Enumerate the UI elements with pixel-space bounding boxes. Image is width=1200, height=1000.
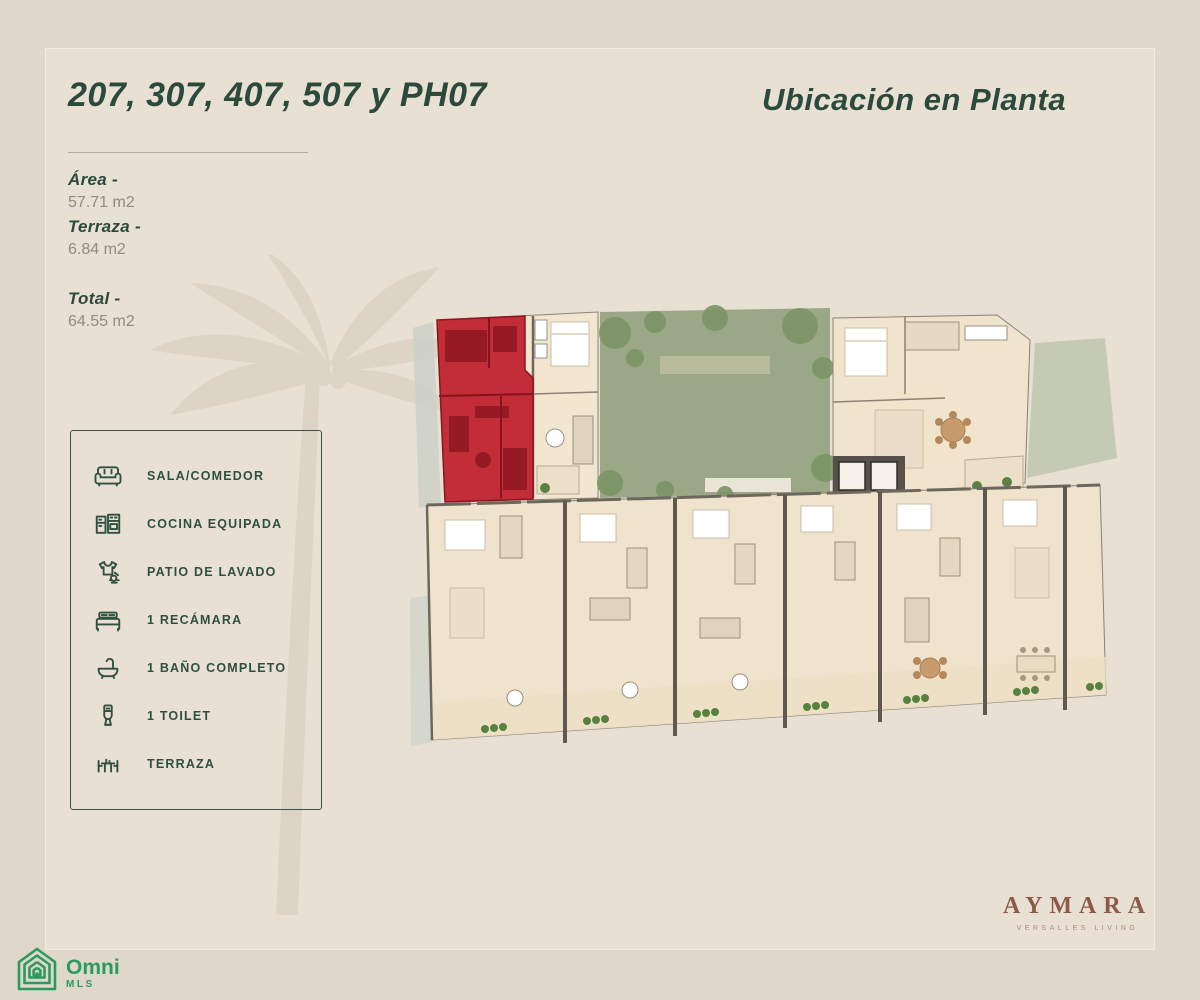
legend-item-cocina: COCINA EQUIPADA [93, 507, 311, 541]
terrace-label: Terraza - [68, 217, 328, 237]
omni-house-icon [16, 946, 58, 997]
title-divider [68, 152, 308, 153]
laundry-icon [93, 556, 133, 588]
legend-label: 1 BAÑO COMPLETO [133, 661, 286, 675]
project-name: AYMARA [985, 893, 1170, 920]
total-value: 64.55 m2 [68, 313, 328, 331]
legend-label: TERRAZA [133, 757, 215, 771]
bed-icon [93, 604, 133, 636]
floor-plan-image [405, 298, 1120, 758]
area-label: Área - [68, 170, 328, 190]
legend-item-patio: PATIO DE LAVADO [93, 555, 311, 589]
legend-item-sala: SALA/COMEDOR [93, 459, 311, 493]
legend-item-terraza: TERRAZA [93, 747, 311, 781]
mls-logo: Omni MLS [16, 946, 120, 997]
terrace-icon [93, 748, 133, 780]
mls-logo-subtext: MLS [66, 980, 120, 990]
plan-location-title: Ubicación en Planta [762, 82, 1066, 118]
mls-logo-text-block: Omni MLS [66, 953, 120, 990]
sidewalk-left [413, 322, 441, 508]
measurements-block: Área - 57.71 m2 Terraza - 6.84 m2 Total … [68, 167, 328, 336]
sofa-icon [93, 460, 133, 492]
legend-item-bano: 1 BAÑO COMPLETO [93, 651, 311, 685]
legend-label: PATIO DE LAVADO [133, 565, 277, 579]
bottom-block [427, 485, 1106, 743]
legend-box: SALA/COMEDOR COCINA EQUIPADA [70, 430, 322, 810]
legend-item-recamara: 1 RECÁMARA [93, 603, 311, 637]
project-tagline: VERSALLES LIVING [985, 925, 1170, 932]
mls-logo-name: Omni [66, 957, 120, 978]
legend-item-toilet: 1 TOILET [93, 699, 311, 733]
project-logo: AYMARA VERSALLES LIVING [985, 893, 1170, 932]
legend-label: COCINA EQUIPADA [133, 517, 282, 531]
terrace-value: 6.84 m2 [68, 241, 328, 259]
legend-label: 1 TOILET [133, 709, 211, 723]
legend-label: SALA/COMEDOR [133, 469, 264, 483]
kitchen-icon [93, 508, 133, 540]
area-value: 57.71 m2 [68, 194, 328, 212]
toilet-icon [93, 700, 133, 732]
courtyard-garden [597, 305, 839, 502]
highlighted-unit [437, 316, 533, 502]
total-label: Total - [68, 289, 328, 309]
upper-right-unit [833, 315, 1030, 498]
garden-right [1027, 338, 1117, 478]
bath-icon [93, 652, 133, 684]
unit-numbers-title: 207, 307, 407, 507 y PH07 [68, 76, 487, 115]
brochure-page: { "colors": { "background": "#ded7ca", "… [0, 0, 1200, 1000]
legend-label: 1 RECÁMARA [133, 613, 242, 627]
